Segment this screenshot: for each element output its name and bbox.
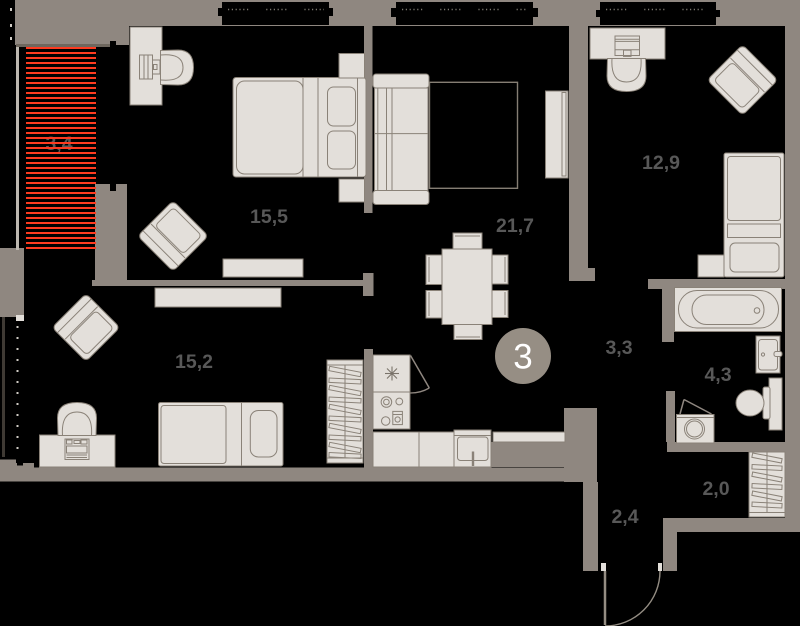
svg-text:15,2: 15,2 xyxy=(175,351,213,373)
svg-text:4,3: 4,3 xyxy=(704,364,731,386)
svg-text:12,9: 12,9 xyxy=(642,152,680,174)
svg-text:3,3: 3,3 xyxy=(605,337,632,359)
svg-text:15,5: 15,5 xyxy=(250,206,288,228)
svg-text:3: 3 xyxy=(513,338,532,377)
svg-text:2,0: 2,0 xyxy=(702,478,729,500)
svg-text:2,4: 2,4 xyxy=(611,506,638,528)
svg-text:21,7: 21,7 xyxy=(496,215,534,237)
